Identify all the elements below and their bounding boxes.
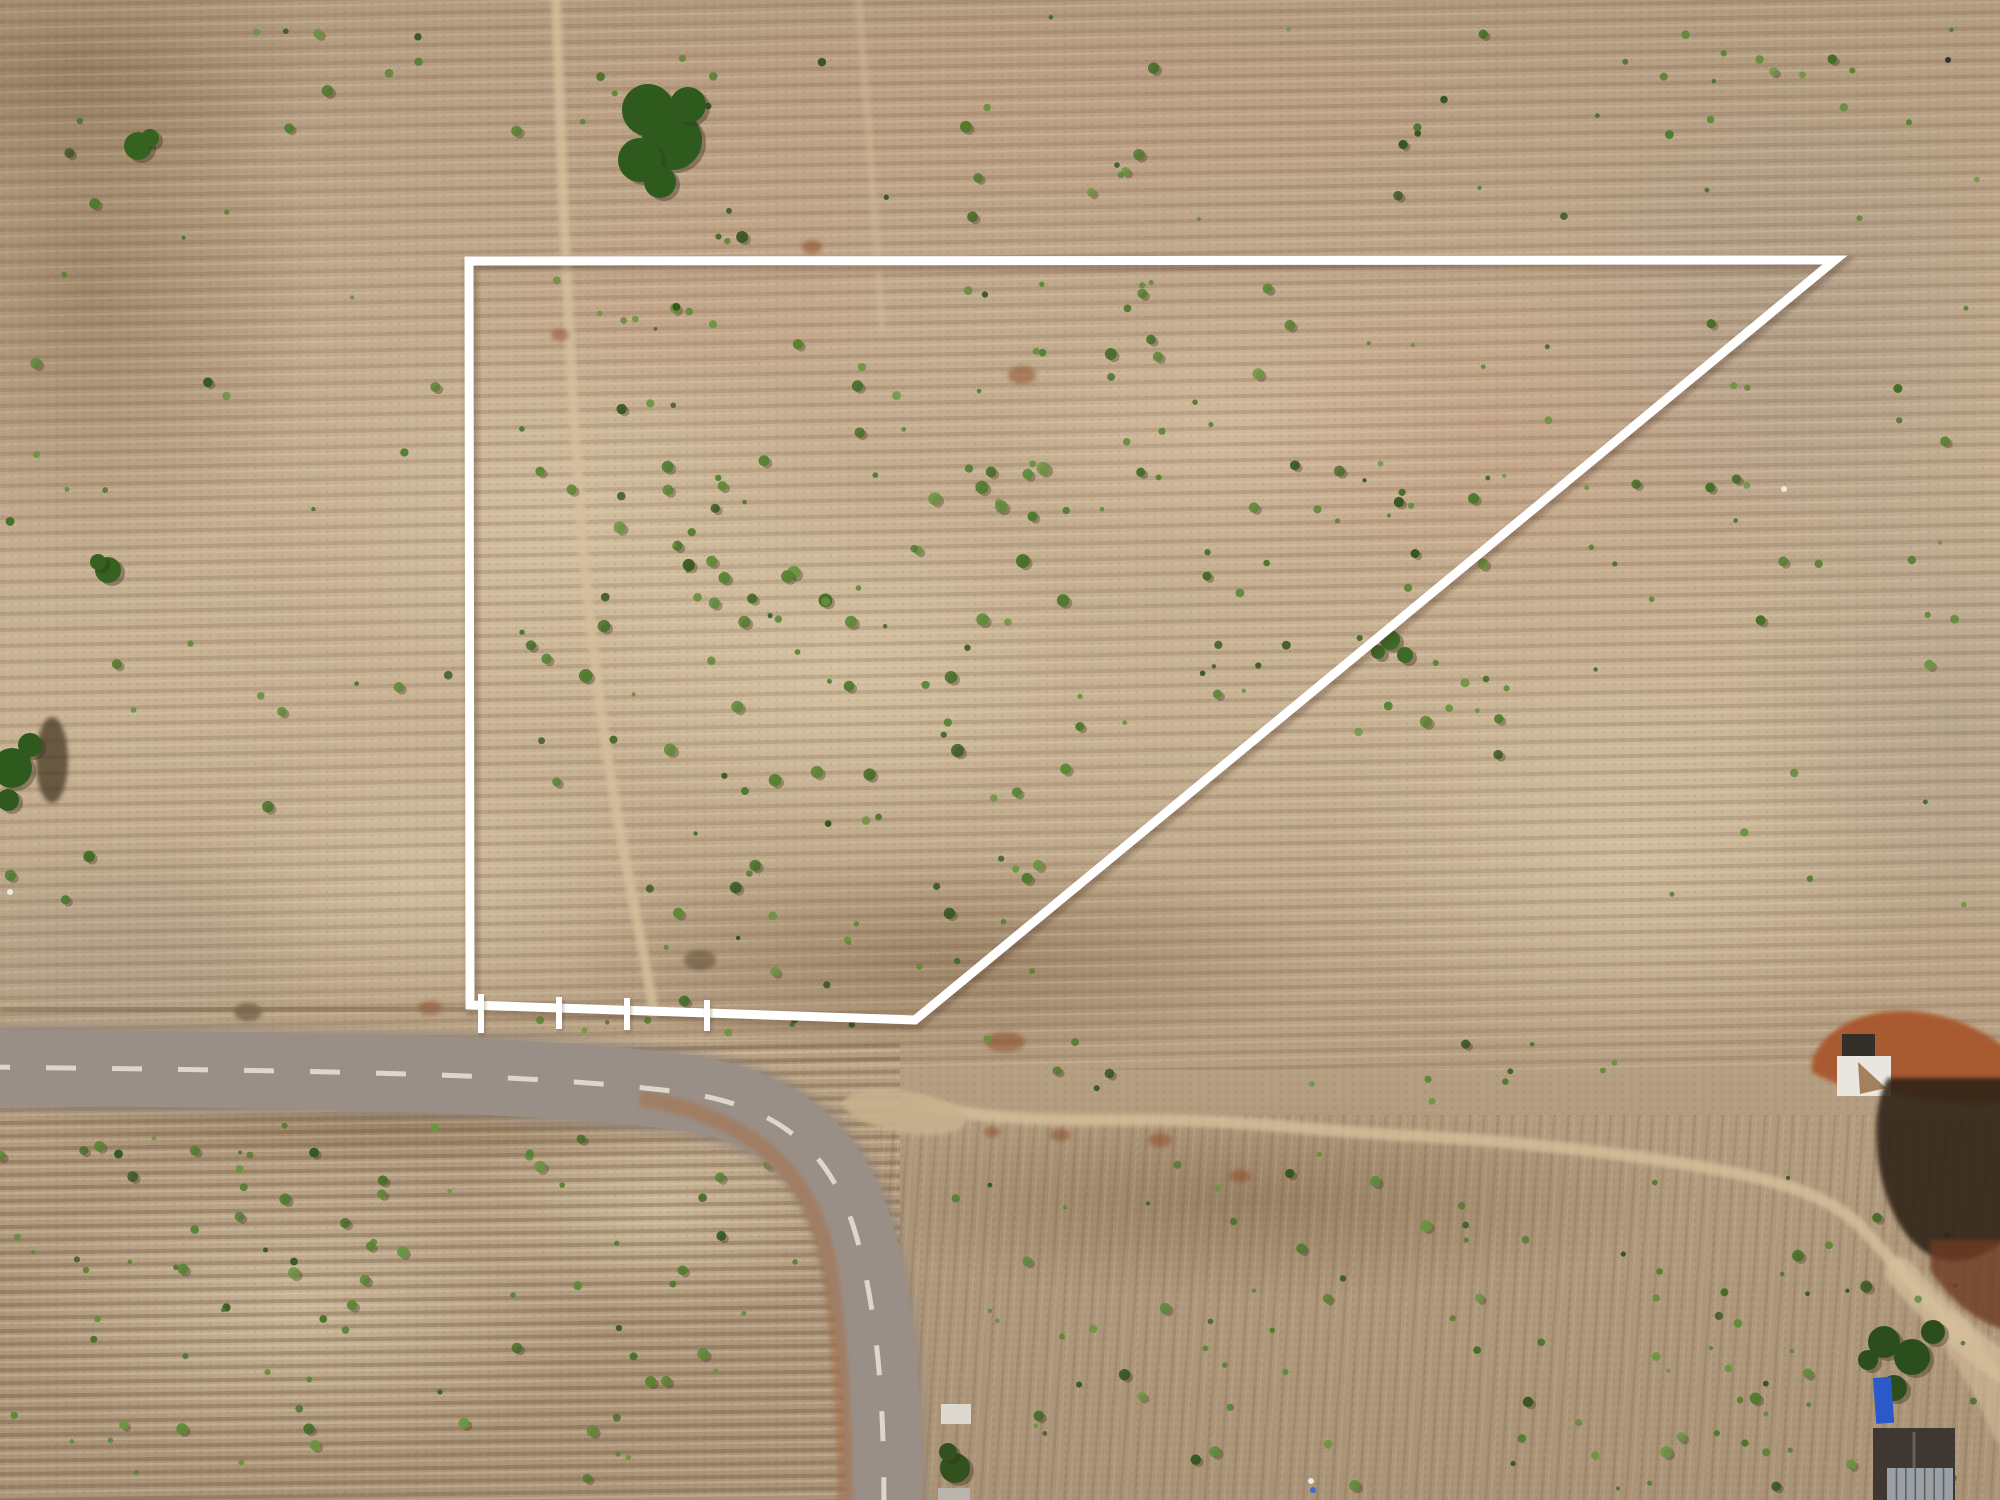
bush: [1704, 188, 1709, 193]
bush: [1827, 54, 1837, 64]
bush: [519, 629, 524, 634]
bush: [965, 464, 973, 472]
bush: [718, 481, 728, 491]
bush: [672, 543, 676, 547]
bush: [933, 883, 940, 890]
bush: [1123, 438, 1130, 445]
bush: [577, 1134, 586, 1143]
bush: [998, 856, 1004, 862]
bush: [975, 481, 988, 494]
bush: [377, 1189, 386, 1198]
bush: [437, 1389, 442, 1394]
bush: [964, 286, 973, 295]
bush: [1060, 764, 1071, 775]
bush: [988, 1183, 993, 1188]
bush: [235, 1212, 245, 1222]
bush: [954, 958, 960, 964]
bush: [685, 308, 693, 316]
bush: [1584, 485, 1589, 490]
bush: [768, 911, 777, 920]
bush: [1158, 428, 1165, 435]
bush: [1653, 1294, 1660, 1301]
bush: [852, 380, 863, 391]
bush: [922, 681, 930, 689]
bush: [792, 1259, 798, 1265]
bush: [716, 1231, 726, 1241]
bush: [1173, 1161, 1181, 1169]
bush: [986, 467, 997, 478]
bush: [646, 399, 654, 407]
bush: [738, 616, 750, 628]
survey-peg-marker: [478, 994, 484, 1033]
bush: [617, 404, 627, 414]
bush: [1252, 1289, 1256, 1293]
bush: [967, 212, 978, 223]
bush: [1387, 514, 1391, 518]
bush: [952, 1194, 960, 1202]
bush: [1974, 177, 1980, 183]
bush: [715, 1173, 725, 1183]
bush: [1712, 79, 1716, 83]
bush: [1323, 1294, 1332, 1303]
bare-red-soil-spot: [985, 1032, 1025, 1052]
bush: [1191, 1454, 1201, 1464]
bush: [1502, 1078, 1509, 1085]
bush: [715, 233, 721, 239]
bush: [1213, 690, 1222, 699]
bush: [347, 1300, 358, 1311]
bush: [1334, 466, 1345, 477]
bush: [587, 1425, 598, 1436]
bush: [746, 870, 753, 877]
bush: [609, 736, 617, 744]
bush: [916, 963, 922, 969]
bush: [385, 69, 394, 78]
bush: [1042, 1431, 1047, 1436]
bush: [1413, 123, 1421, 131]
bush: [1458, 1202, 1466, 1210]
bare-red-soil-spot: [1050, 1129, 1070, 1141]
bush: [152, 1136, 156, 1140]
bush: [30, 358, 41, 369]
bush: [1200, 670, 1206, 676]
bush: [1089, 1325, 1097, 1333]
bush: [1197, 217, 1201, 221]
bush: [1786, 1176, 1790, 1180]
bush: [1924, 660, 1934, 670]
bush: [1780, 1272, 1785, 1277]
bush: [960, 121, 972, 133]
bush: [414, 33, 421, 40]
bush: [944, 718, 952, 726]
bush: [1309, 1081, 1315, 1087]
bush: [1669, 892, 1674, 897]
bush: [290, 1258, 298, 1266]
bush: [444, 671, 453, 680]
bush: [892, 391, 901, 400]
ground-speck: [1308, 1478, 1314, 1484]
bush: [1107, 373, 1115, 381]
bush: [1621, 1251, 1626, 1256]
bush: [1420, 716, 1432, 728]
bush: [1544, 416, 1552, 424]
bare-red-soil-spot: [1229, 1170, 1251, 1182]
bush: [1970, 1398, 1977, 1405]
ground-speck: [1945, 57, 1951, 63]
bush: [94, 1141, 105, 1152]
bush: [257, 692, 265, 700]
dark-pit: [1842, 1034, 1875, 1058]
bush: [672, 303, 680, 311]
bush: [944, 908, 955, 919]
bush: [1263, 560, 1270, 567]
bush: [1707, 116, 1715, 124]
bush: [5, 870, 16, 881]
bush: [901, 427, 906, 432]
bush: [1022, 1256, 1032, 1266]
bush: [1425, 1076, 1432, 1083]
bush: [1740, 828, 1748, 836]
bush: [1893, 384, 1902, 393]
blue-tarp: [1873, 1377, 1894, 1424]
bush: [1677, 1432, 1687, 1442]
bush: [1825, 1241, 1833, 1249]
bush: [1153, 352, 1163, 362]
survey-peg-marker: [556, 997, 562, 1029]
bush: [1507, 1068, 1513, 1074]
bush: [221, 1308, 226, 1313]
bush: [1616, 1486, 1620, 1490]
bush: [1720, 1288, 1728, 1296]
bush: [793, 339, 803, 349]
bush: [941, 732, 947, 738]
bush: [709, 72, 718, 81]
bush: [1062, 507, 1069, 514]
bush: [414, 58, 422, 66]
bush: [1032, 348, 1039, 355]
tree-canopy: [1858, 1350, 1878, 1370]
bush: [1071, 1038, 1079, 1046]
bush: [1094, 1085, 1100, 1091]
bush: [127, 1260, 132, 1265]
bush: [1803, 1369, 1813, 1379]
bush: [303, 1423, 314, 1434]
dark-tilled-shoulder: [0, 1008, 468, 1011]
bush: [131, 707, 137, 713]
bush: [1681, 30, 1689, 38]
bush: [730, 882, 742, 894]
bush: [94, 1316, 101, 1323]
bush: [1771, 1481, 1781, 1491]
bush: [519, 426, 525, 432]
bush: [620, 317, 627, 324]
bush: [1705, 482, 1715, 492]
bush: [1324, 1440, 1333, 1449]
bush: [1502, 474, 1506, 478]
bush: [781, 570, 793, 582]
bush: [1270, 1328, 1275, 1333]
bush: [1950, 615, 1959, 624]
bush: [1286, 27, 1290, 31]
bush: [626, 1455, 631, 1460]
bush: [1872, 1213, 1882, 1223]
bush: [74, 1256, 80, 1262]
bush: [1665, 130, 1674, 139]
bush: [1612, 1060, 1618, 1066]
bush: [818, 58, 827, 67]
bush: [90, 1336, 97, 1343]
bush: [1856, 215, 1862, 221]
bush: [526, 640, 536, 650]
bush: [1799, 71, 1806, 78]
aerial-drone-photo: [0, 0, 2000, 1500]
bush: [1433, 660, 1439, 666]
bush: [596, 72, 605, 81]
bush: [1004, 618, 1012, 626]
bush: [741, 787, 749, 795]
bush: [736, 231, 748, 243]
bush: [263, 1247, 268, 1252]
bush: [679, 996, 690, 1007]
bush: [1105, 1069, 1115, 1079]
bush: [510, 1292, 515, 1297]
bush: [1483, 676, 1490, 683]
bush: [1100, 507, 1105, 512]
bush: [1393, 191, 1403, 201]
bush: [295, 1405, 303, 1413]
bush: [582, 1027, 588, 1033]
bush: [102, 487, 108, 493]
bush: [1296, 1244, 1306, 1254]
bush: [182, 236, 186, 240]
bush: [854, 921, 859, 926]
bush: [775, 615, 783, 623]
bush: [1755, 55, 1763, 63]
bush: [176, 1423, 188, 1435]
bush: [741, 1311, 746, 1316]
tree-canopy: [644, 166, 676, 198]
bush: [845, 616, 857, 628]
bush: [1124, 305, 1132, 313]
bush: [1778, 557, 1788, 567]
bush: [1530, 1042, 1535, 1047]
bush: [1033, 860, 1044, 871]
bush: [1612, 561, 1617, 566]
bush: [319, 1315, 327, 1323]
bush: [1732, 474, 1741, 483]
bush: [713, 1369, 718, 1374]
bush: [1137, 289, 1147, 299]
bush: [1335, 518, 1340, 523]
bush: [1022, 873, 1033, 884]
bush: [238, 1150, 242, 1154]
bush: [1660, 73, 1668, 81]
bush: [1354, 728, 1362, 736]
bush: [1788, 1447, 1793, 1452]
bush: [567, 484, 577, 494]
bush: [711, 504, 720, 513]
bush: [536, 1016, 544, 1024]
bush: [350, 295, 354, 299]
bush: [552, 778, 561, 787]
bush: [284, 123, 294, 133]
bush: [1807, 876, 1813, 882]
bush: [114, 1149, 123, 1158]
bush: [1485, 476, 1490, 481]
bush: [559, 1182, 565, 1188]
bush: [693, 593, 702, 602]
bush: [709, 320, 717, 328]
bush: [664, 744, 676, 756]
bush: [749, 860, 761, 872]
bush: [11, 1412, 18, 1419]
bush: [573, 1281, 582, 1290]
bush: [33, 451, 40, 458]
bush: [1575, 1419, 1582, 1426]
bush: [1285, 1169, 1294, 1178]
bush: [342, 1326, 350, 1334]
bush: [1461, 1039, 1470, 1048]
bush: [1494, 714, 1503, 723]
bush: [1475, 708, 1480, 713]
bush: [1545, 344, 1550, 349]
ground-speck: [1781, 486, 1787, 492]
bush: [977, 389, 982, 394]
bush: [1039, 282, 1044, 287]
bush: [182, 1353, 188, 1359]
bush: [721, 773, 727, 779]
bush: [858, 363, 866, 371]
bush: [1398, 140, 1407, 149]
bush: [1591, 1451, 1599, 1459]
bush: [706, 556, 717, 567]
bush: [1029, 968, 1035, 974]
bush: [1146, 335, 1156, 345]
bush: [1631, 479, 1640, 488]
bush: [707, 657, 715, 665]
bush: [988, 1309, 992, 1313]
bush: [277, 707, 287, 717]
bush: [1034, 1411, 1045, 1422]
bush: [1493, 750, 1503, 760]
bush: [1077, 694, 1082, 699]
bush: [1016, 554, 1030, 568]
bush: [1473, 1346, 1481, 1354]
bush: [173, 1264, 179, 1270]
bare-red-soil-spot: [551, 329, 569, 341]
tree-canopy: [939, 1443, 957, 1461]
bush: [1523, 1397, 1533, 1407]
bush: [1730, 382, 1737, 389]
bush: [6, 517, 15, 526]
bush: [1522, 1236, 1530, 1244]
bush: [951, 744, 964, 757]
bush: [1149, 280, 1154, 285]
bare-red-soil-spot: [1008, 366, 1036, 384]
bush: [1037, 462, 1051, 476]
bush: [1792, 1250, 1804, 1262]
bush: [1208, 1319, 1214, 1325]
bush: [1212, 664, 1217, 669]
bush: [983, 1035, 990, 1042]
small-white-shed-roof: [941, 1404, 971, 1424]
bush: [1408, 503, 1414, 509]
bush: [187, 640, 193, 646]
bush: [614, 1241, 619, 1246]
bush: [614, 521, 626, 533]
bush: [719, 572, 731, 584]
bush: [1057, 594, 1070, 607]
bush: [1136, 468, 1145, 477]
bush: [1378, 461, 1384, 467]
bush: [190, 1146, 200, 1156]
bush: [526, 1149, 534, 1157]
bush: [679, 55, 686, 62]
bush: [89, 198, 100, 209]
bush: [1001, 919, 1007, 925]
tree-canopy: [1921, 1320, 1945, 1344]
bush: [1362, 478, 1366, 482]
bush: [1119, 1369, 1130, 1380]
bush: [1429, 1098, 1436, 1105]
bush: [1714, 1430, 1720, 1436]
bush: [83, 851, 95, 863]
bush: [264, 1369, 270, 1375]
bush: [825, 820, 832, 827]
bush: [747, 593, 757, 603]
bush: [1263, 284, 1273, 294]
bush: [1840, 103, 1848, 111]
bush: [306, 1376, 312, 1382]
bush: [1059, 1334, 1065, 1340]
bush: [1255, 662, 1261, 668]
bush: [541, 654, 552, 665]
small-grey-shed-roof: [938, 1488, 970, 1500]
bush: [224, 209, 229, 214]
bush: [77, 118, 83, 124]
bush: [79, 1146, 88, 1155]
bush: [1600, 1068, 1606, 1074]
bush: [872, 472, 878, 478]
bush: [511, 126, 522, 137]
bush: [1114, 162, 1120, 168]
bush: [1737, 1397, 1743, 1403]
bush: [1445, 704, 1453, 712]
bush: [1139, 282, 1145, 288]
bush: [61, 895, 70, 904]
bush: [1660, 1446, 1672, 1458]
bush: [1750, 1392, 1762, 1404]
bush: [1399, 489, 1406, 496]
bush: [262, 801, 274, 813]
bush: [400, 448, 408, 456]
bush: [976, 613, 989, 626]
ground-shadow: [36, 717, 68, 803]
bush: [1192, 399, 1198, 405]
bush: [447, 1189, 452, 1194]
bush: [1133, 149, 1144, 160]
bush: [512, 1343, 523, 1354]
bush: [538, 737, 545, 744]
bush: [1805, 1291, 1810, 1296]
bush: [1440, 96, 1448, 104]
bush: [1588, 545, 1594, 551]
bush: [662, 485, 673, 496]
bush: [856, 585, 862, 591]
bush: [616, 1325, 622, 1331]
bush: [134, 1470, 139, 1475]
bush: [178, 1264, 189, 1275]
